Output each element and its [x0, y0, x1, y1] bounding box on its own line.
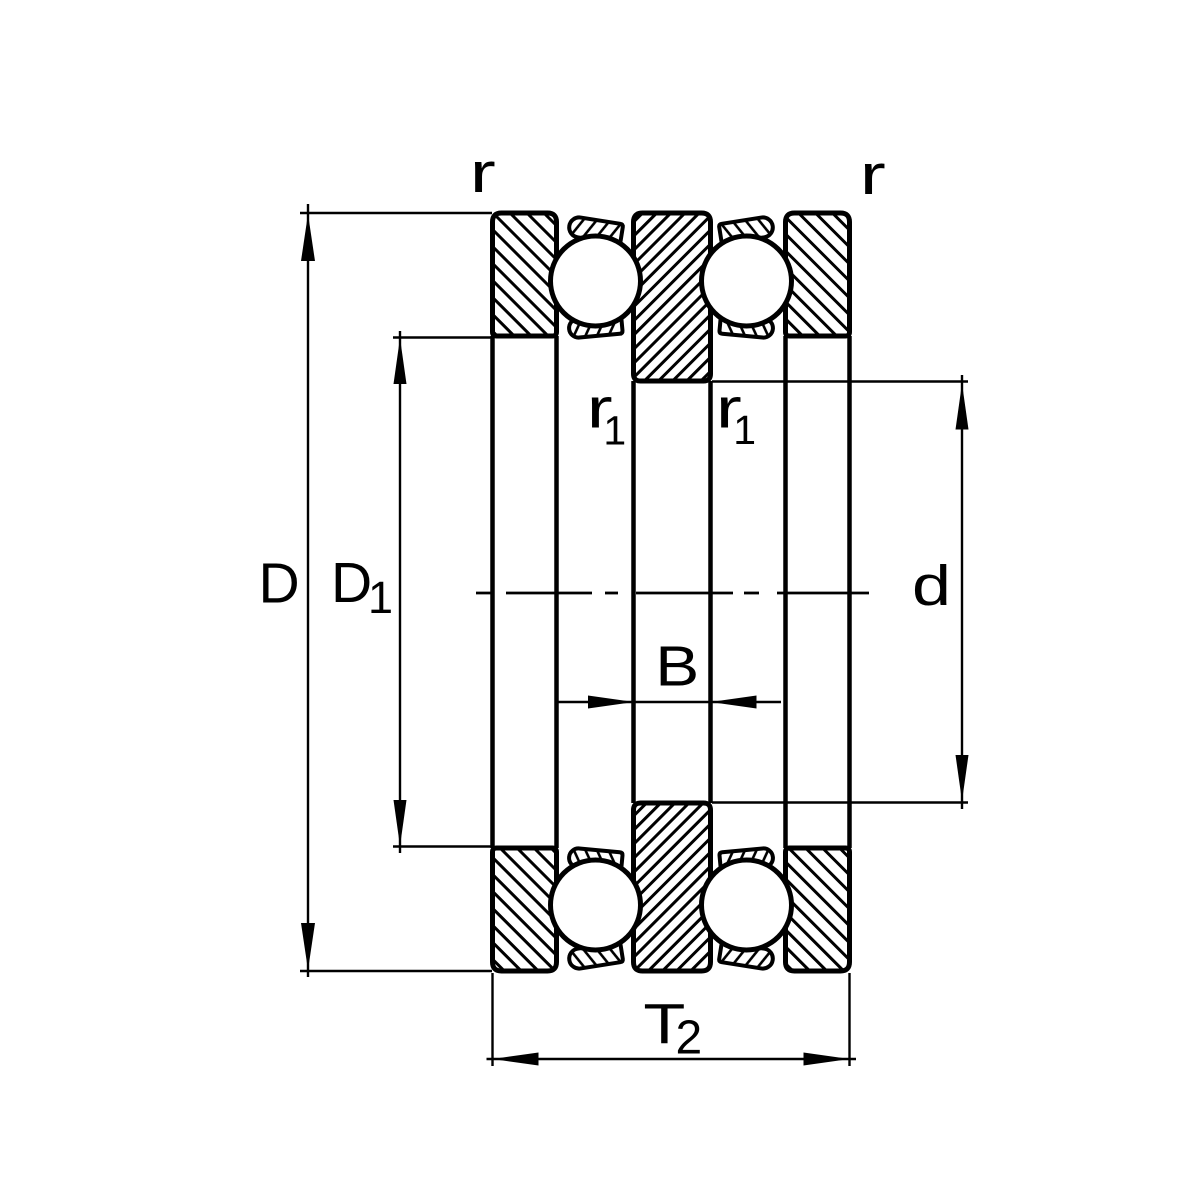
svg-text:2: 2	[676, 1012, 703, 1065]
svg-text:1: 1	[733, 407, 756, 453]
svg-text:1: 1	[368, 572, 393, 623]
svg-text:d: d	[912, 554, 951, 618]
svg-text:r: r	[860, 143, 886, 207]
svg-text:r: r	[470, 141, 496, 205]
svg-text:D: D	[259, 552, 300, 616]
svg-text:1: 1	[603, 408, 626, 454]
svg-text:B: B	[655, 635, 699, 699]
svg-text:D: D	[331, 551, 372, 615]
